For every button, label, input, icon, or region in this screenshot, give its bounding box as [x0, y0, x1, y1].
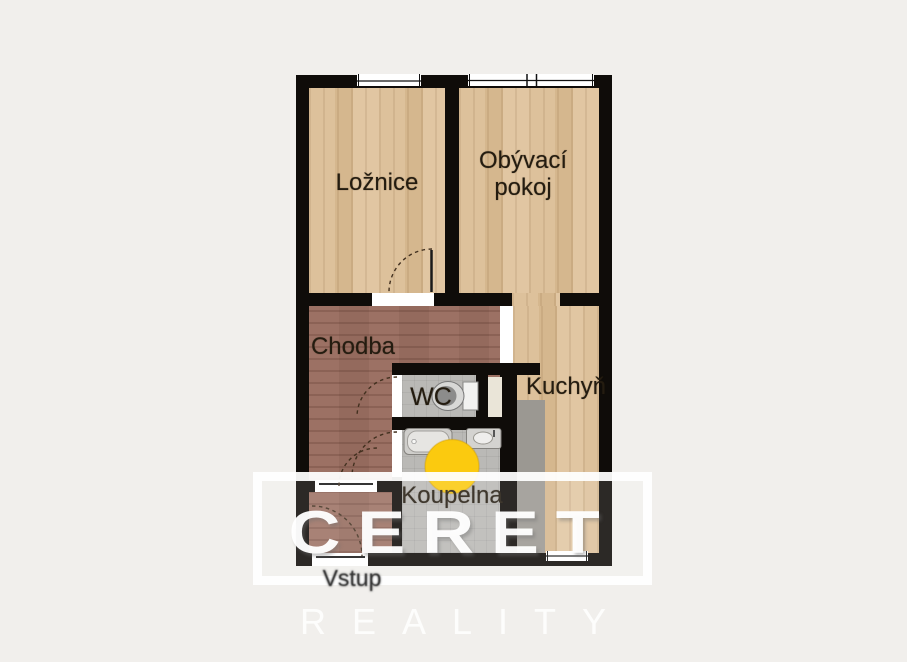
- watermark-brand: CERET: [213, 503, 692, 563]
- label-loznice: Ložnice: [309, 170, 445, 197]
- window-loznice: [357, 74, 421, 86]
- bedroom-door-swing: [389, 249, 432, 292]
- wc-door-swing: [357, 377, 397, 417]
- watermark-subtitle: REALITY: [238, 601, 668, 643]
- label-vstup: Vstup: [310, 565, 394, 592]
- label-wc: WC: [402, 383, 460, 411]
- label-obyvaci-pokoj: Obývací pokoj: [453, 148, 593, 202]
- label-chodba: Chodba: [305, 334, 401, 361]
- sink-icon: [467, 429, 502, 449]
- floorplan-page: Ložnice Obývací pokoj Chodba WC Kuchyň K…: [0, 0, 907, 662]
- bath-door-swing: [352, 432, 397, 477]
- label-kuchyn: Kuchyň: [516, 374, 616, 401]
- window-obyvaci-pokoj: [468, 74, 594, 86]
